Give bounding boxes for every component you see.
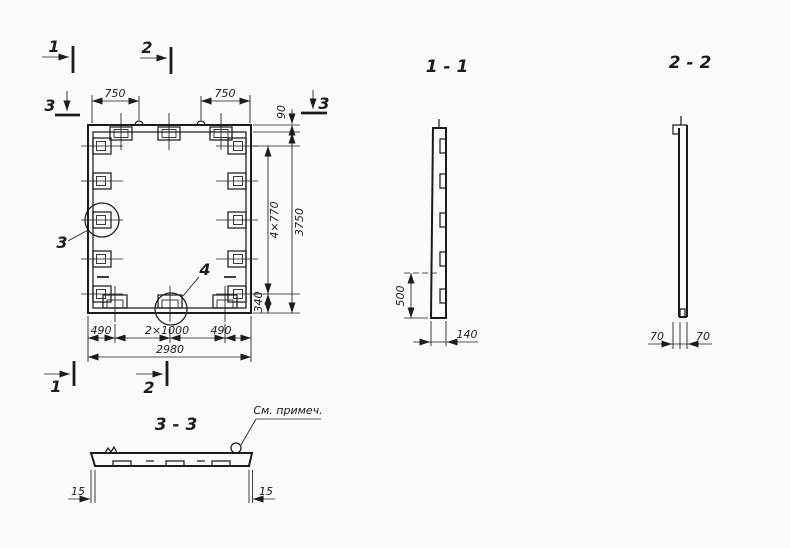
svg-text:70: 70: [696, 330, 710, 343]
section-mark-left-3: 3: [44, 91, 80, 115]
dim-340: 340: [252, 292, 265, 313]
section-mark-bottom-1: 1: [44, 361, 74, 396]
svg-text:15: 15: [259, 485, 273, 498]
dim-140: 140: [413, 321, 478, 346]
svg-text:140: 140: [457, 328, 478, 341]
svg-text:2: 2: [143, 378, 154, 397]
section-2-2-title: 2 - 2: [669, 53, 712, 73]
svg-text:70: 70: [650, 330, 664, 343]
dim-750-left: 750: [105, 87, 126, 100]
dim-15-right: 15: [249, 470, 275, 503]
section-mark-top-1: 1: [42, 37, 73, 73]
section-3-3-title: 3 - 3: [155, 415, 198, 435]
callout-3-label: 3: [56, 233, 67, 252]
technical-drawing: 3 4 750 750: [0, 0, 790, 548]
svg-text:1: 1: [48, 37, 59, 56]
dim-2980: 2980: [156, 343, 184, 356]
section-view-3-3: 3 - 3 См. примеч. 15 15: [68, 404, 323, 503]
section-mark-bottom-2: 2: [136, 361, 167, 397]
svg-text:1: 1: [50, 377, 61, 396]
section-view-2-2: 2 - 2 70 70: [648, 53, 712, 349]
dim-70-70: 70 70: [648, 322, 712, 349]
dim-top: 750 750: [92, 87, 250, 123]
section-view-1-1: 1 - 1 500 140: [394, 57, 478, 346]
bottom-anchors: [103, 286, 237, 322]
callout-detail-4: 4: [155, 260, 211, 325]
drawing-sheet: 3 4 750 750: [0, 0, 790, 548]
section-mark-right-3: 3: [301, 90, 330, 113]
svg-text:3: 3: [44, 96, 55, 115]
dim-750-right: 750: [215, 87, 236, 100]
section-1-1-title: 1 - 1: [426, 57, 469, 77]
dim-4x770: 4×770: [268, 201, 281, 238]
svg-text:2: 2: [141, 38, 152, 57]
dim-90: 90: [275, 105, 288, 119]
svg-text:3: 3: [318, 94, 329, 113]
panel-outline: [88, 125, 251, 313]
plan-view: 3 4 750 750: [42, 37, 330, 397]
svg-text:500: 500: [394, 286, 407, 307]
dim-490-right: 490: [211, 324, 232, 337]
dim-3750: 3750: [293, 208, 306, 236]
note-callout: См. примеч.: [241, 404, 323, 445]
dim-2x1000: 2×1000: [145, 324, 189, 337]
section-3-3-body: [91, 453, 252, 466]
dim-490-left: 490: [91, 324, 112, 337]
section-mark-top-2: 2: [140, 38, 171, 74]
lifting-loop-section: [231, 443, 241, 453]
dim-bottom: 490 2×1000 490 2980: [88, 316, 251, 362]
svg-text:15: 15: [71, 485, 85, 498]
dim-15-left: 15: [68, 470, 95, 503]
section-2-2-body: [673, 116, 687, 317]
note-text: См. примеч.: [253, 404, 322, 417]
dim-right: 90 4×770 340 3750: [252, 105, 306, 313]
callout-4-label: 4: [198, 260, 210, 279]
